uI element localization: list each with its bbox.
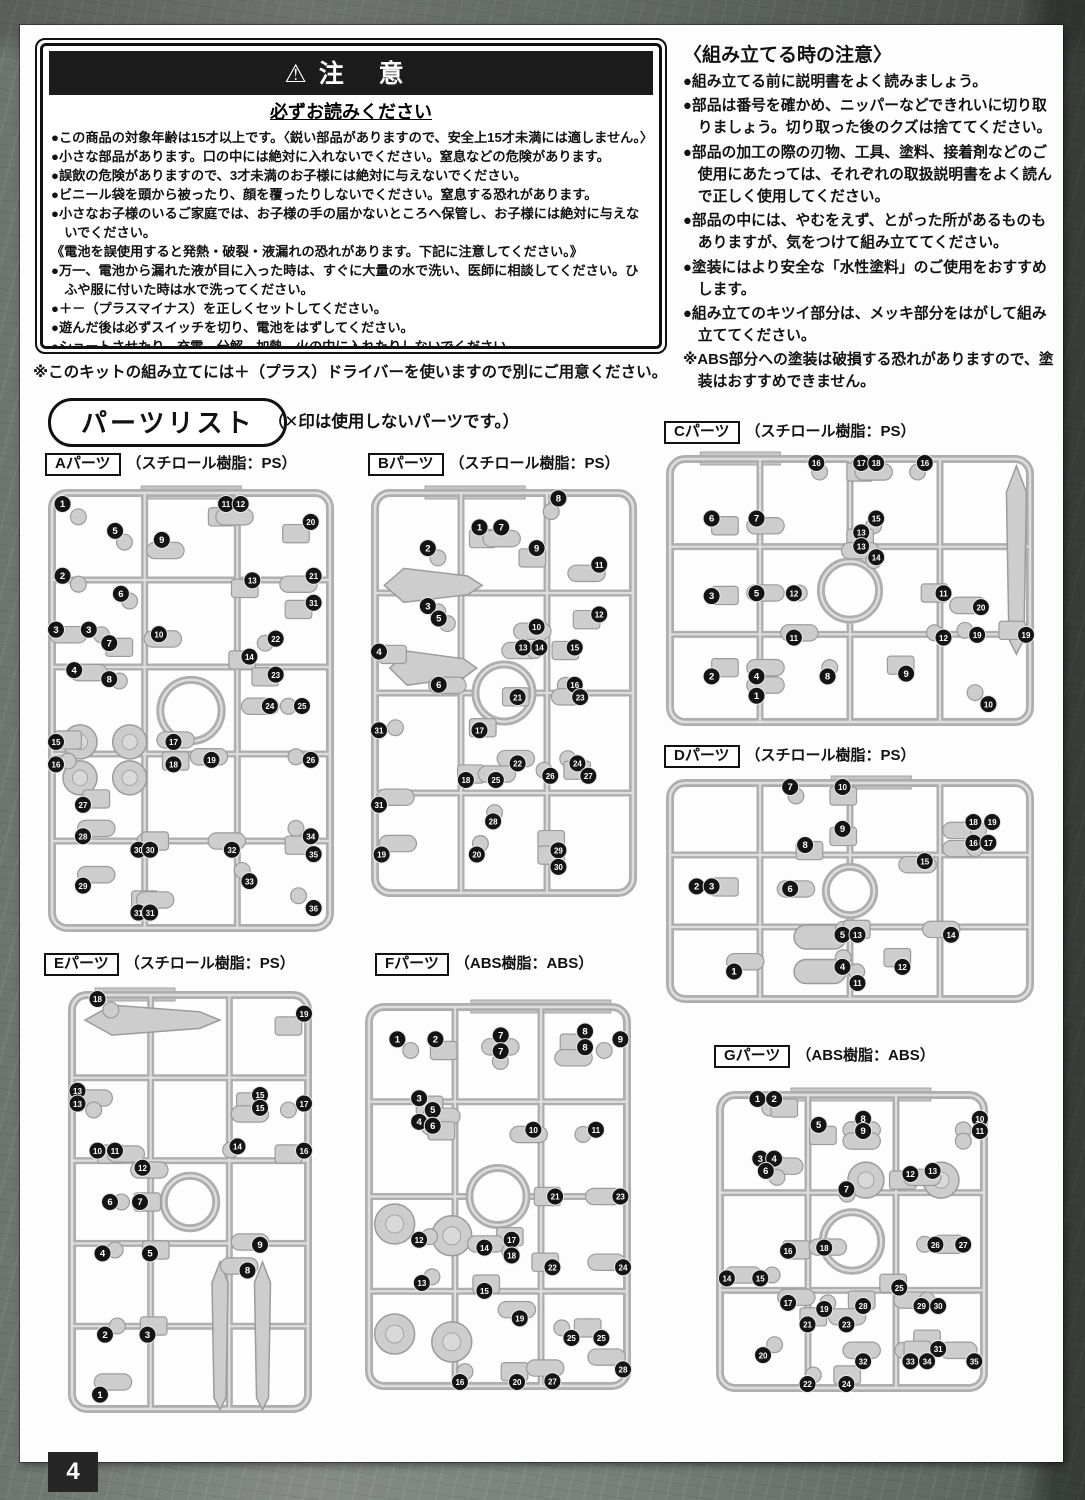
parts-list-title: パーツリスト xyxy=(48,398,287,447)
svg-text:5: 5 xyxy=(147,1249,153,1260)
svg-text:10: 10 xyxy=(154,630,163,639)
part-number-badge: 24 xyxy=(838,1376,855,1393)
svg-text:2: 2 xyxy=(425,543,430,554)
sprue-material: （スチロール樹脂：PS） xyxy=(746,747,916,764)
part-number-badge: 12 xyxy=(591,606,608,623)
svg-text:1: 1 xyxy=(395,1035,401,1046)
warning-triangle-icon: ⚠ xyxy=(284,60,306,88)
svg-text:3: 3 xyxy=(709,591,714,602)
svg-text:14: 14 xyxy=(233,1143,242,1152)
svg-text:26: 26 xyxy=(931,1241,940,1250)
assembly-note-item: ●組み立てる前に説明書をよく読みましょう。 xyxy=(683,71,1059,93)
svg-text:30: 30 xyxy=(554,863,563,872)
svg-text:31: 31 xyxy=(146,909,155,918)
svg-text:29: 29 xyxy=(79,882,88,891)
assembly-note-item: ●部品の加工の際の刃物、工具、塗料、接着剤などのご使用にあたっては、それぞれの取… xyxy=(683,142,1059,209)
caution-item: ●万一、電池から漏れた液が目に入った時は、すぐに大量の水で洗い、医師に相談してく… xyxy=(51,261,651,299)
svg-text:13: 13 xyxy=(248,576,257,585)
svg-text:9: 9 xyxy=(159,535,164,546)
part-number-badge: 4 xyxy=(834,958,851,975)
svg-text:5: 5 xyxy=(816,1120,822,1131)
sprue-letter-label: Fパーツ xyxy=(375,953,449,976)
part-number-badge: 11 xyxy=(785,629,802,646)
part-number-badge: 29 xyxy=(550,842,567,859)
caution-box-inner: ⚠注 意 必ずお読みください ●この商品の対象年齢は15才以上です。〈鋭い部品が… xyxy=(40,43,662,349)
part-number-badge: 18 xyxy=(868,455,885,472)
part-number-badge: 2 xyxy=(419,540,436,557)
svg-text:29: 29 xyxy=(917,1302,926,1311)
part-number-badge: 13 xyxy=(244,572,261,589)
part-number-badge: 15 xyxy=(868,510,885,527)
part-number-badge: 30 xyxy=(142,841,159,858)
part-number-badge: 10 xyxy=(89,1142,106,1159)
part-number-badge: 28 xyxy=(615,1361,632,1378)
part-number-badge: 10 xyxy=(525,1121,542,1138)
part-number-badge: 6 xyxy=(102,1194,119,1211)
svg-text:34: 34 xyxy=(306,832,315,841)
part-number-badge: 19 xyxy=(296,1005,313,1022)
sprue-diagram-E: E181913131515171011141612679458231 xyxy=(65,988,315,1416)
part-number-badge: 7 xyxy=(132,1194,149,1211)
svg-text:19: 19 xyxy=(207,756,216,765)
part-number-badge: 35 xyxy=(966,1353,983,1370)
part-number-badge: 3 xyxy=(139,1326,156,1343)
svg-text:12: 12 xyxy=(595,611,604,620)
svg-text:20: 20 xyxy=(513,1378,522,1387)
svg-text:10: 10 xyxy=(532,623,541,632)
part-number-badge: 18 xyxy=(165,756,182,773)
part-number-badge: 18 xyxy=(457,771,474,788)
part-number-badge: 13 xyxy=(413,1274,430,1291)
svg-text:27: 27 xyxy=(79,801,88,810)
part-number-badge: 11 xyxy=(849,975,866,992)
part-number-badge: 7 xyxy=(838,1181,855,1198)
part-number-badge: 35 xyxy=(305,846,322,863)
svg-text:16: 16 xyxy=(784,1247,793,1256)
part-number-badge: 25 xyxy=(891,1279,908,1296)
caution-item: ●ビニール袋を頭から被ったり、顔を覆ったりしないでください。窒息する恐れがありま… xyxy=(51,185,651,204)
part-number-badge: 16 xyxy=(780,1242,797,1259)
part-number-badge: 14 xyxy=(241,648,258,665)
svg-text:22: 22 xyxy=(548,1263,557,1272)
svg-text:22: 22 xyxy=(271,635,280,644)
part-number-badge: 28 xyxy=(485,813,502,830)
svg-text:12: 12 xyxy=(906,1170,915,1179)
part-number-badge: 27 xyxy=(74,796,91,813)
svg-text:15: 15 xyxy=(920,857,929,866)
svg-text:17: 17 xyxy=(784,1299,793,1308)
part-number-badge: 24 xyxy=(615,1259,632,1276)
svg-text:8: 8 xyxy=(825,672,830,683)
part-number-badge: 6 xyxy=(782,880,799,897)
svg-text:23: 23 xyxy=(842,1321,851,1330)
sprue-header-B: Bパーツ（スチロール樹脂：PS） xyxy=(368,452,620,473)
svg-text:2: 2 xyxy=(60,571,65,582)
svg-text:9: 9 xyxy=(860,1126,865,1137)
svg-text:4: 4 xyxy=(416,1117,422,1128)
svg-text:2: 2 xyxy=(694,882,699,893)
svg-text:13: 13 xyxy=(417,1279,426,1288)
assembly-note-item: ●塗装にはより安全な「水性塗料」のご使用をおすすめします。 xyxy=(683,257,1059,301)
part-number-badge: 14 xyxy=(942,926,959,943)
part-number-badge: 25 xyxy=(487,771,504,788)
svg-text:30: 30 xyxy=(146,846,155,855)
sprue-header-E: Eパーツ（スチロール樹脂：PS） xyxy=(44,952,295,973)
part-number-badge: 19 xyxy=(969,626,986,643)
part-number-badge: 9 xyxy=(252,1236,269,1253)
svg-text:7: 7 xyxy=(498,1046,503,1057)
sprue-header-C: Cパーツ（スチロール樹脂：PS） xyxy=(664,420,916,441)
part-number-badge: 13 xyxy=(853,538,870,555)
svg-text:12: 12 xyxy=(236,500,245,509)
sprue-diagram-B: B817291131210541314156162123311722241825… xyxy=(368,486,640,900)
svg-text:6: 6 xyxy=(763,1166,768,1177)
svg-text:24: 24 xyxy=(573,760,582,769)
part-number-badge: 5 xyxy=(142,1245,159,1262)
svg-text:16: 16 xyxy=(52,761,61,770)
part-number-badge: 32 xyxy=(223,841,240,858)
part-number-badge: 1 xyxy=(471,519,488,536)
svg-text:13: 13 xyxy=(857,529,866,538)
part-number-badge: 7 xyxy=(493,519,510,536)
part-number-badge: 16 xyxy=(451,1374,468,1391)
page-number: 4 xyxy=(48,1452,98,1492)
assembly-note-item: ●部品は番号を確かめ、ニッパーなどできれいに切り取りましょう。切り取った後のクズ… xyxy=(683,95,1059,139)
svg-text:9: 9 xyxy=(618,1035,623,1046)
svg-text:1: 1 xyxy=(97,1390,103,1401)
sprue-letter-label: Bパーツ xyxy=(368,453,444,476)
svg-text:9: 9 xyxy=(840,824,845,835)
part-number-badge: 21 xyxy=(509,689,526,706)
part-number-badge: 4 xyxy=(371,643,388,660)
svg-text:6: 6 xyxy=(430,1121,435,1132)
caution-subheader: 必ずお読みください xyxy=(43,98,659,124)
assembly-note-item: ※ABS部分への塗装は破損する恐れがありますので、塗装はおすすめできません。 xyxy=(683,349,1059,393)
part-number-badge: 21 xyxy=(799,1316,816,1333)
part-number-badge: 5 xyxy=(810,1116,827,1133)
svg-text:15: 15 xyxy=(256,1104,265,1113)
svg-text:16: 16 xyxy=(455,1378,464,1387)
part-number-badge: 28 xyxy=(855,1297,872,1314)
svg-text:3: 3 xyxy=(425,601,430,612)
svg-text:7: 7 xyxy=(137,1197,142,1208)
svg-text:18: 18 xyxy=(872,459,881,468)
svg-text:21: 21 xyxy=(551,1193,560,1202)
caution-item: ●ショートさせたり、充電、分解、加熱、火の中に入れたりしないでください。 xyxy=(51,337,651,349)
svg-text:6: 6 xyxy=(118,589,123,600)
part-number-badge: 25 xyxy=(593,1329,610,1346)
part-number-badge: 5 xyxy=(430,610,447,627)
sprue-diagram-C: C161718166715131314351211201919111224891… xyxy=(663,452,1037,729)
part-number-badge: 6 xyxy=(430,676,447,693)
part-number-badge: 32 xyxy=(855,1353,872,1370)
svg-text:29: 29 xyxy=(554,847,563,856)
svg-text:20: 20 xyxy=(976,603,985,612)
svg-text:18: 18 xyxy=(820,1244,829,1253)
part-number-badge: 9 xyxy=(612,1031,629,1048)
svg-text:26: 26 xyxy=(546,772,555,781)
svg-text:12: 12 xyxy=(939,634,948,643)
svg-text:28: 28 xyxy=(859,1302,868,1311)
part-number-badge: 6 xyxy=(757,1162,774,1179)
part-number-badge: 9 xyxy=(898,665,915,682)
part-number-badge: 23 xyxy=(572,689,589,706)
part-number-badge: 12 xyxy=(902,1165,919,1182)
part-number-badge: 18 xyxy=(503,1247,520,1264)
part-number-badge: 15 xyxy=(752,1270,769,1287)
sprue-diagram-F: FABS127788935461011212312171418222413151… xyxy=(362,1000,634,1393)
svg-text:19: 19 xyxy=(820,1305,829,1314)
part-number-badge: 11 xyxy=(591,556,608,573)
part-number-badge: 14 xyxy=(868,549,885,566)
svg-text:11: 11 xyxy=(976,1127,985,1136)
svg-text:21: 21 xyxy=(803,1321,812,1330)
part-number-badge: 27 xyxy=(544,1373,561,1390)
part-number-badge: 12 xyxy=(411,1231,428,1248)
part-number-badge: 15 xyxy=(476,1282,493,1299)
svg-text:31: 31 xyxy=(309,599,318,608)
part-number-badge: 19 xyxy=(816,1301,833,1318)
part-number-badge: 14 xyxy=(718,1270,735,1287)
part-number-badge: 10 xyxy=(834,779,851,796)
svg-text:9: 9 xyxy=(903,669,908,680)
svg-text:10: 10 xyxy=(984,700,993,709)
svg-text:1: 1 xyxy=(754,691,760,702)
part-number-badge: 8 xyxy=(797,837,814,854)
part-number-badge: 15 xyxy=(48,733,65,750)
svg-text:19: 19 xyxy=(988,818,997,827)
svg-text:22: 22 xyxy=(513,760,522,769)
svg-text:13: 13 xyxy=(519,644,528,653)
part-number-badge: 34 xyxy=(302,828,319,845)
svg-text:23: 23 xyxy=(271,671,280,680)
svg-text:17: 17 xyxy=(475,726,484,735)
part-number-badge: 16 xyxy=(48,756,65,773)
caution-item: ●遊んだ後は必ずスイッチを切り、電池をはずしてください。 xyxy=(51,318,651,337)
svg-text:6: 6 xyxy=(788,884,793,895)
svg-text:3: 3 xyxy=(709,882,714,893)
part-number-badge: 17 xyxy=(165,733,182,750)
part-number-badge: 26 xyxy=(302,751,319,768)
caution-item: ●誤飲の危険がありますので、3才未満のお子様には絶対に与えないでください。 xyxy=(51,166,651,185)
svg-text:4: 4 xyxy=(754,672,760,683)
svg-text:1: 1 xyxy=(477,523,483,534)
svg-text:28: 28 xyxy=(619,1366,628,1375)
sprue-diagram-A: A111125209213216313371022144823242515171… xyxy=(45,486,337,935)
svg-text:31: 31 xyxy=(934,1345,943,1354)
sprue-material: （スチロール樹脂：PS） xyxy=(127,455,297,472)
svg-text:23: 23 xyxy=(576,693,585,702)
svg-text:2: 2 xyxy=(102,1330,107,1341)
part-number-badge: 8 xyxy=(577,1023,594,1040)
svg-text:15: 15 xyxy=(480,1287,489,1296)
svg-text:17: 17 xyxy=(507,1236,516,1245)
svg-text:24: 24 xyxy=(619,1263,628,1272)
part-number-badge: 19 xyxy=(203,751,220,768)
svg-text:8: 8 xyxy=(245,1266,250,1277)
part-number-badge: 1 xyxy=(749,1091,766,1108)
part-number-badge: 15 xyxy=(252,1099,269,1116)
svg-text:6: 6 xyxy=(436,680,441,691)
svg-text:12: 12 xyxy=(789,589,798,598)
svg-text:17: 17 xyxy=(984,839,993,848)
svg-text:23: 23 xyxy=(616,1193,625,1202)
part-number-badge: 22 xyxy=(267,630,284,647)
part-number-badge: 11 xyxy=(935,585,952,602)
part-number-badge: 31 xyxy=(371,796,388,813)
svg-text:13: 13 xyxy=(857,542,866,551)
part-number-badge: 30 xyxy=(550,858,567,875)
part-number-badge: 9 xyxy=(834,820,851,837)
svg-text:18: 18 xyxy=(507,1252,516,1261)
sprue-letter-label: Dパーツ xyxy=(664,745,740,768)
svg-text:25: 25 xyxy=(298,702,307,711)
svg-text:30: 30 xyxy=(934,1302,943,1311)
svg-text:18: 18 xyxy=(169,761,178,770)
part-number-badge: 23 xyxy=(612,1188,629,1205)
part-number-badge: 21 xyxy=(305,567,322,584)
part-number-badge: 4 xyxy=(66,662,83,679)
svg-text:20: 20 xyxy=(759,1351,768,1360)
sprue-material: （ABS樹脂：ABS） xyxy=(455,955,593,972)
svg-text:2: 2 xyxy=(772,1094,777,1105)
svg-text:10: 10 xyxy=(93,1147,102,1156)
part-number-badge: 27 xyxy=(580,767,597,784)
part-number-badge: 5 xyxy=(748,585,765,602)
part-number-badge: 5 xyxy=(834,926,851,943)
part-number-badge: 2 xyxy=(97,1326,114,1343)
assembly-notes: 〈組み立てる時の注意〉 ●組み立てる前に説明書をよく読みましょう。 ●部品は番号… xyxy=(683,40,1059,396)
sprue-material: （スチロール樹脂：PS） xyxy=(746,423,916,440)
sprue-material: （スチロール樹脂：PS） xyxy=(125,955,295,972)
svg-text:28: 28 xyxy=(489,818,498,827)
svg-text:11: 11 xyxy=(592,1126,601,1135)
part-number-badge: 18 xyxy=(89,991,106,1008)
part-number-badge: 13 xyxy=(515,639,532,656)
part-number-badge: 14 xyxy=(229,1138,246,1155)
svg-text:14: 14 xyxy=(535,644,544,653)
part-number-badge: 12 xyxy=(232,495,249,512)
svg-text:11: 11 xyxy=(111,1147,120,1156)
part-number-badge: 36 xyxy=(305,900,322,917)
part-number-badge: 22 xyxy=(799,1376,816,1393)
caution-header: ⚠注 意 xyxy=(49,51,653,95)
svg-text:10: 10 xyxy=(529,1126,538,1135)
part-number-badge: 2 xyxy=(688,878,705,895)
part-number-badge: 6 xyxy=(112,585,129,602)
screwdriver-note: ※このキットの組み立てには＋（プラス）ドライバーを使いますので別にご用意ください… xyxy=(33,360,678,382)
svg-text:34: 34 xyxy=(923,1357,932,1366)
part-number-badge: 6 xyxy=(424,1117,441,1134)
part-number-badge: 10 xyxy=(150,626,167,643)
part-number-badge: 20 xyxy=(302,513,319,530)
svg-text:3: 3 xyxy=(86,625,91,636)
svg-text:2: 2 xyxy=(709,672,714,683)
svg-text:16: 16 xyxy=(300,1147,309,1156)
part-number-badge: 17 xyxy=(471,722,488,739)
caution-item: 《電池を誤使用すると発熱・破裂・液漏れの恐れがあります。下記に注意してください。… xyxy=(51,242,651,261)
svg-text:19: 19 xyxy=(515,1315,524,1324)
svg-text:19: 19 xyxy=(377,851,386,860)
part-number-badge: 13 xyxy=(69,1095,86,1112)
part-number-badge: 12 xyxy=(894,958,911,975)
sprue-header-G: Gパーツ（ABS樹脂：ABS） xyxy=(714,1044,935,1065)
svg-text:25: 25 xyxy=(567,1334,576,1343)
part-number-badge: 11 xyxy=(587,1121,604,1138)
svg-text:7: 7 xyxy=(107,638,112,649)
part-number-badge: 4 xyxy=(94,1245,111,1262)
sprue-letter-label: Gパーツ xyxy=(714,1045,790,1068)
svg-text:15: 15 xyxy=(570,644,579,653)
svg-text:17: 17 xyxy=(300,1100,309,1109)
caution-item: ●この商品の対象年齢は15才以上です。〈鋭い部品がありますので、安全上15才未満… xyxy=(51,128,651,147)
svg-text:21: 21 xyxy=(309,572,318,581)
svg-text:8: 8 xyxy=(802,840,807,851)
svg-text:7: 7 xyxy=(498,1031,503,1042)
part-number-badge: 23 xyxy=(838,1316,855,1333)
part-number-badge: 1 xyxy=(726,963,743,980)
svg-text:8: 8 xyxy=(582,1027,587,1038)
parts-list-note: （✕印は使用しないパーツです。） xyxy=(268,408,519,432)
part-number-badge: 33 xyxy=(902,1353,919,1370)
part-number-badge: 15 xyxy=(916,853,933,870)
svg-text:5: 5 xyxy=(436,614,442,625)
assembly-note-item: ●部品の中には、やむをえず、とがった所があるものもありますが、気をつけて組み立て… xyxy=(683,210,1059,254)
svg-text:18: 18 xyxy=(461,776,470,785)
caution-item: ●＋－（プラスマイナス）を正しくセットしてください。 xyxy=(51,299,651,318)
sprue-diagram-G: GABS128105911346121371618262714152517192… xyxy=(713,1088,991,1395)
svg-text:5: 5 xyxy=(112,526,118,537)
svg-text:3: 3 xyxy=(53,625,58,636)
svg-text:25: 25 xyxy=(491,776,500,785)
svg-text:7: 7 xyxy=(499,523,504,534)
part-number-badge: 2 xyxy=(766,1091,783,1108)
sprue-diagram-D: D71018199161781523651314412111 xyxy=(663,776,1037,1006)
part-number-badge: 19 xyxy=(984,814,1001,831)
scanned-manual-page: ⚠注 意 必ずお読みください ●この商品の対象年齢は15才以上です。〈鋭い部品が… xyxy=(0,0,1085,1500)
svg-text:3: 3 xyxy=(416,1093,421,1104)
svg-text:7: 7 xyxy=(788,782,793,793)
svg-text:11: 11 xyxy=(790,634,799,643)
svg-text:13: 13 xyxy=(853,931,862,940)
part-number-badge: 24 xyxy=(261,698,278,715)
svg-text:32: 32 xyxy=(859,1357,868,1366)
svg-text:26: 26 xyxy=(306,756,315,765)
svg-text:8: 8 xyxy=(582,1042,587,1053)
svg-text:13: 13 xyxy=(928,1167,937,1176)
sprue-letter-label: Eパーツ xyxy=(44,953,119,976)
part-number-badge: 29 xyxy=(913,1297,930,1314)
part-number-badge: 31 xyxy=(305,594,322,611)
part-number-badge: 14 xyxy=(476,1239,493,1256)
part-number-badge: 9 xyxy=(528,540,545,557)
svg-text:1: 1 xyxy=(731,967,737,978)
svg-text:21: 21 xyxy=(513,693,522,702)
svg-text:1: 1 xyxy=(60,499,66,510)
caution-item: ●小さな部品があります。口の中には絶対に入れないでください。窒息などの危険があり… xyxy=(51,147,651,166)
part-number-badge: 16 xyxy=(916,455,933,472)
svg-text:8: 8 xyxy=(107,674,112,685)
part-number-badge: 3 xyxy=(48,621,65,638)
part-number-badge: 3 xyxy=(703,878,720,895)
svg-text:4: 4 xyxy=(840,962,846,973)
part-number-badge: 2 xyxy=(427,1031,444,1048)
sprue-material: （スチロール樹脂：PS） xyxy=(450,455,620,472)
svg-text:20: 20 xyxy=(472,851,481,860)
svg-text:8: 8 xyxy=(556,494,561,505)
part-number-badge: 3 xyxy=(411,1090,428,1107)
svg-text:5: 5 xyxy=(430,1105,436,1116)
